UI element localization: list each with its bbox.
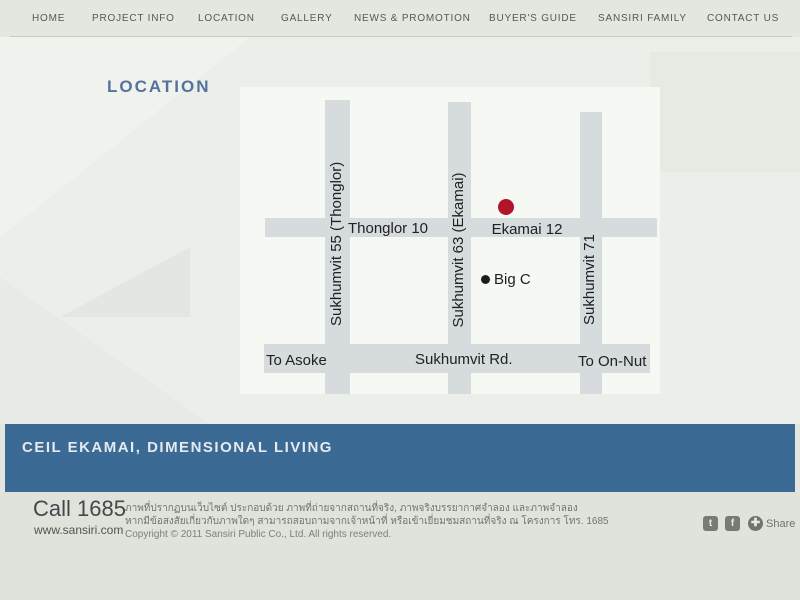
background-decoration [0, 37, 250, 237]
road-label-sukhumvit-55: Sukhumvit 55 (Thonglor) [329, 166, 345, 326]
direction-label-to-on-nut: To On-Nut [578, 353, 646, 370]
banner-title: CEIL EKAMAI, DIMENSIONAL LIVING [22, 439, 333, 456]
legal-text: ภาพที่ปรากฏบนเว็บไซต์ ประกอบด้วย ภาพที่ถ… [125, 503, 609, 542]
facebook-icon[interactable]: f [725, 516, 740, 531]
location-map: Sukhumvit 55 (Thonglor) Sukhumvit 63 (Ek… [240, 87, 660, 394]
direction-label-to-asoke: To Asoke [266, 352, 327, 369]
disclaimer-line-2: หากมีข้อสงสัยเกี่ยวกับภาพใดๆ สามารถสอบถา… [125, 516, 609, 529]
sansiri-location-page: HOME PROJECT INFO LOCATION GALLERY NEWS … [0, 0, 800, 600]
road-label-sukhumvit-71: Sukhumvit 71 [582, 237, 598, 325]
road-label-thonglor-10: Thonglor 10 [338, 220, 438, 237]
background-decoration [60, 247, 190, 317]
nav-item-sansiri-family[interactable]: SANSIRI FAMILY [598, 13, 687, 24]
nav-item-buyers-guide[interactable]: BUYER'S GUIDE [489, 13, 577, 24]
nav-item-home[interactable]: HOME [32, 13, 65, 24]
copyright-text: Copyright © 2011 Sansiri Public Co., Ltd… [125, 529, 609, 542]
road-label-sukhumvit-rd: Sukhumvit Rd. [415, 351, 510, 368]
big-c-label: Big C [494, 271, 531, 288]
nav-item-project-info[interactable]: PROJECT INFO [92, 13, 175, 24]
twitter-icon[interactable]: t [703, 516, 718, 531]
nav-item-location[interactable]: LOCATION [198, 13, 255, 24]
share-label[interactable]: Share [766, 518, 795, 530]
share-icon[interactable]: ✚ [748, 516, 763, 531]
nav-item-news-promotion[interactable]: NEWS & PROMOTION [354, 13, 471, 24]
website-link[interactable]: www.sansiri.com [34, 523, 123, 537]
big-c-marker [481, 275, 490, 284]
project-location-marker [498, 199, 514, 215]
nav-item-gallery[interactable]: GALLERY [281, 13, 333, 24]
page-title: LOCATION [107, 77, 211, 97]
main-nav: HOME PROJECT INFO LOCATION GALLERY NEWS … [0, 0, 800, 37]
road-label-sukhumvit-63: Sukhumvit 63 (Ekamai) [451, 170, 467, 330]
content-area: LOCATION Sukhumvit 55 (Thonglor) Sukhumv… [0, 37, 800, 424]
disclaimer-line-1: ภาพที่ปรากฏบนเว็บไซต์ ประกอบด้วย ภาพที่ถ… [125, 503, 609, 516]
footer: Call 1685 www.sansiri.com ภาพที่ปรากฏบนเ… [0, 492, 800, 600]
project-banner: CEIL EKAMAI, DIMENSIONAL LIVING [5, 424, 795, 492]
nav-item-contact-us[interactable]: CONTACT US [707, 13, 779, 24]
call-number: Call 1685 [33, 496, 126, 522]
road-label-ekamai-12: Ekamai 12 [487, 221, 567, 238]
background-decoration [650, 52, 800, 172]
